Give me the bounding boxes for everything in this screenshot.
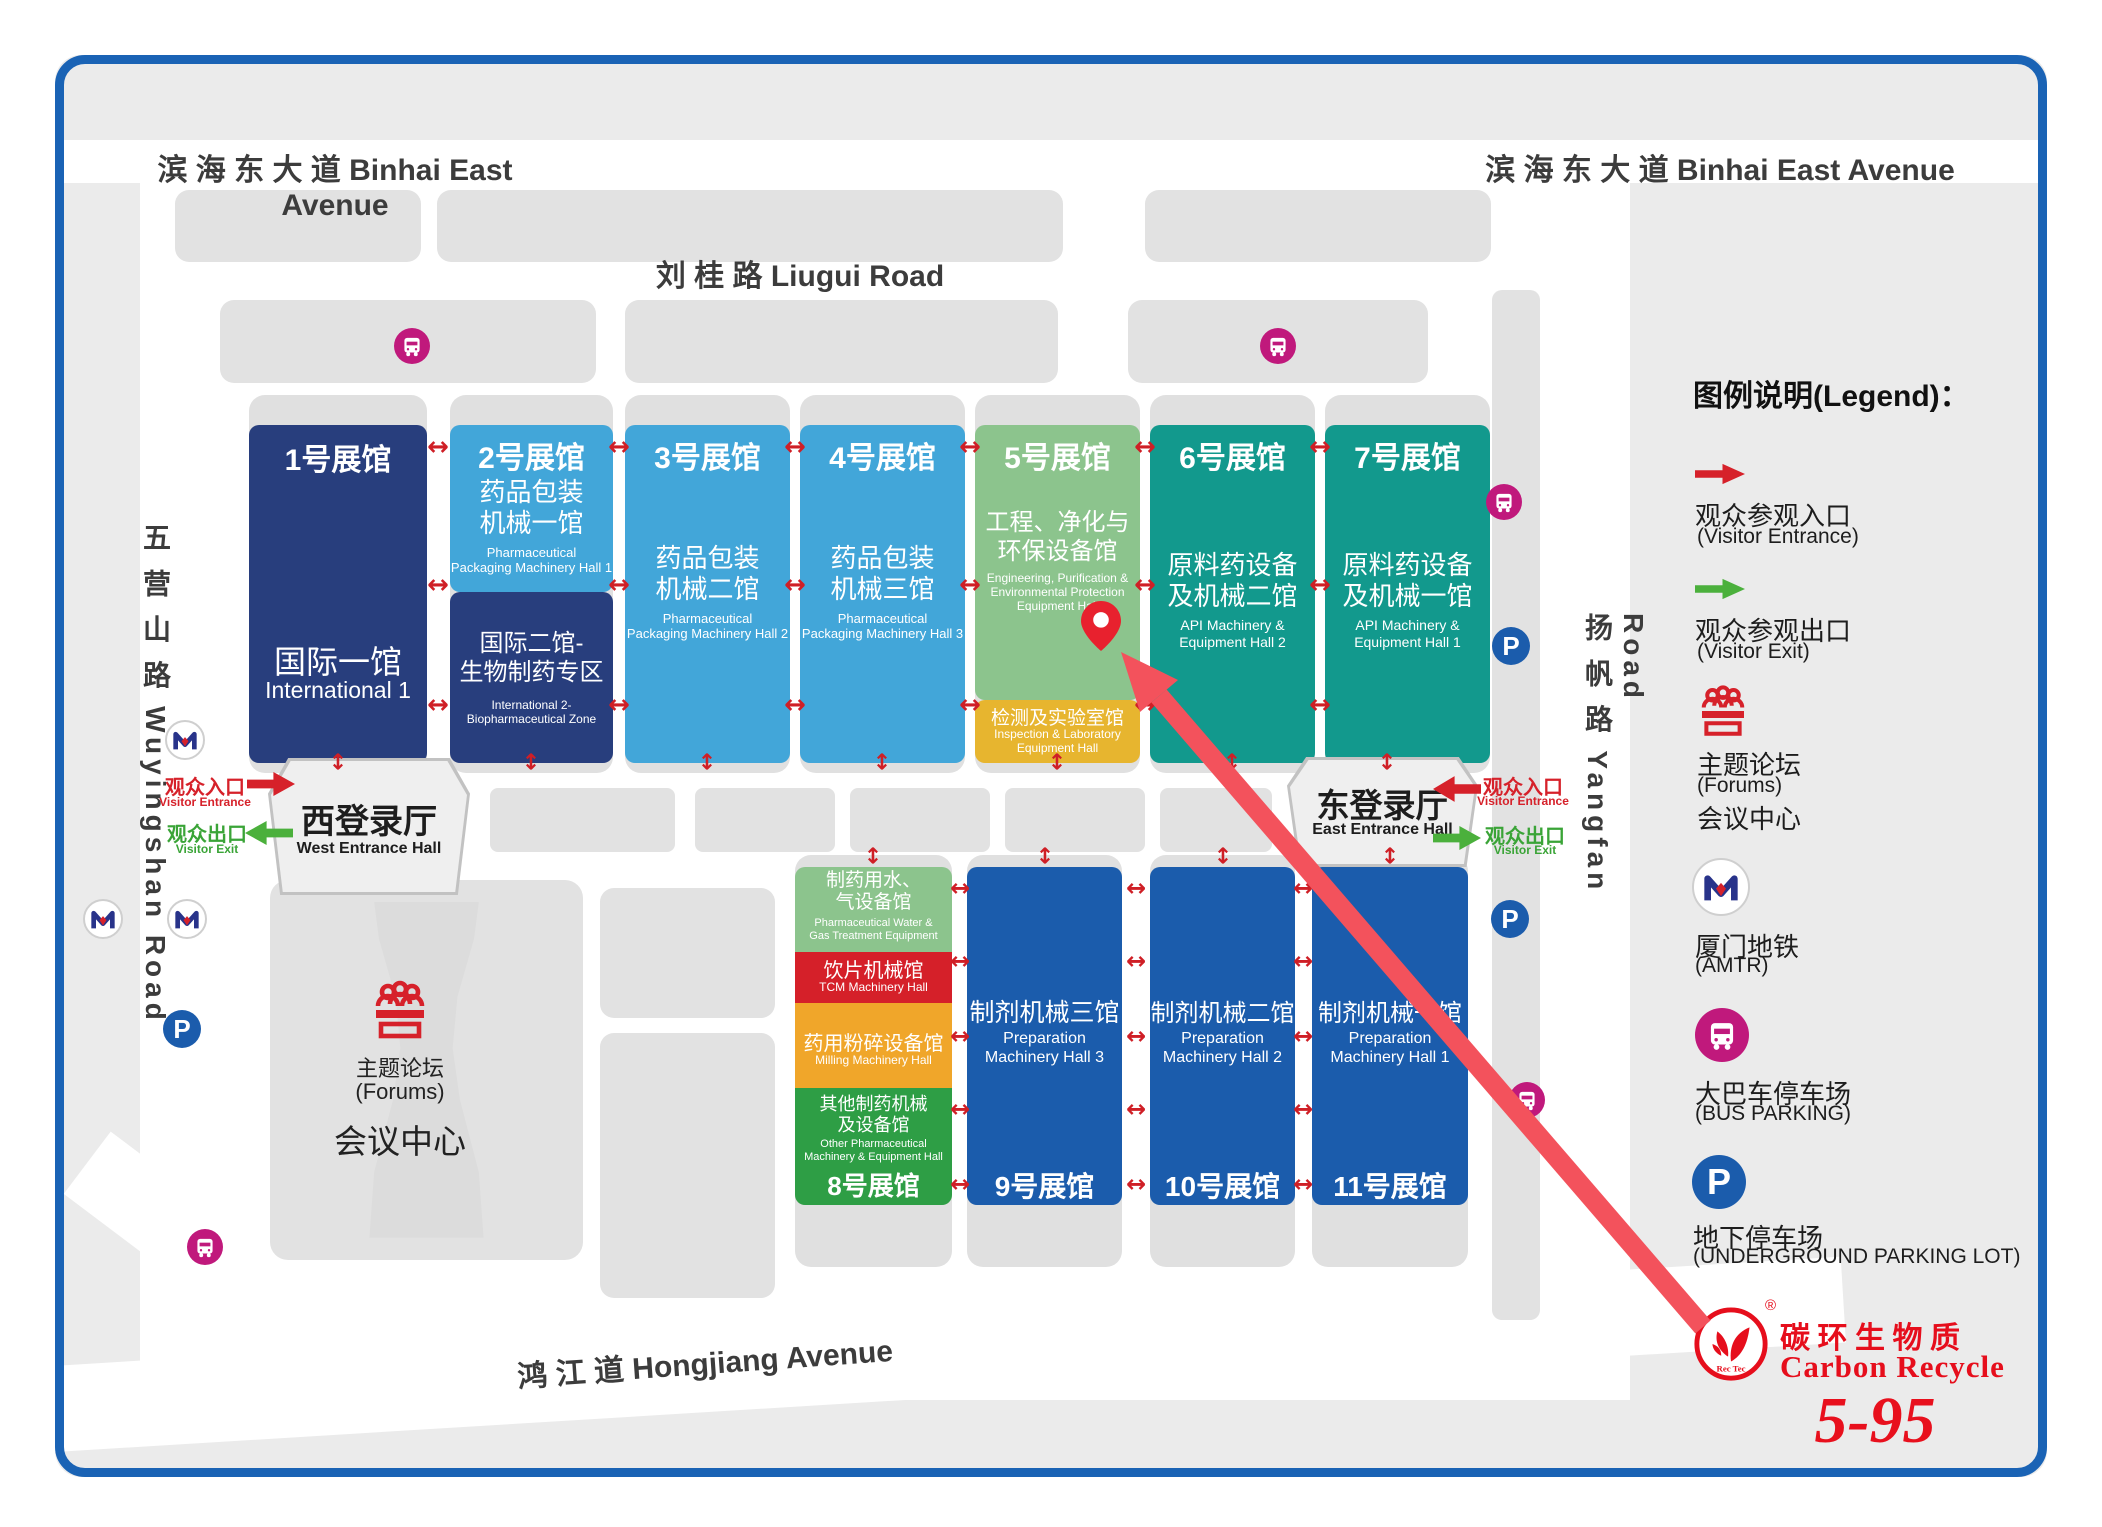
connector-arrow-icon: ↕ [1214,845,1232,870]
bus-stop-icon [1486,484,1522,520]
parking-icon: P [163,1010,201,1048]
corridor-block [850,788,990,852]
connector-arrow-icon: ↔ [950,874,970,902]
connector-arrow-icon: ↔ [1309,690,1331,720]
legend-parking-icon: P [1692,1155,1746,1209]
connector-arrow-icon: ↔ [1126,947,1146,975]
east-visitor-exit-en: Visitor Exit [1479,843,1571,857]
hall-10: 制剂机械二馆 Preparation Machinery Hall 2 10号展… [1150,867,1295,1205]
corridor-block [1005,788,1145,852]
hall-int2-en: International 2- Biopharmaceutical Zone [450,698,613,726]
hall-2-cn: 药品包装 机械一馆 [450,477,613,539]
hall-10-cn: 制剂机械二馆 [1150,993,1295,1028]
hall-8-other-en: Other Pharmaceutical Machinery & Equipme… [795,1138,952,1163]
bus-stop-icon [1509,1082,1545,1118]
hall-4-no: 4号展馆 [800,433,965,477]
corridor-block [1160,788,1272,852]
west-entrance-hall-cn: 西登录厅 [268,794,470,843]
hall-8-no: 8号展馆 [795,1166,952,1203]
hall-1-en: International 1 [249,677,427,704]
connector-arrow-icon: ↕ [873,751,891,776]
hall-8-other-cn: 其他制药机械 及设备馆 [795,1094,952,1135]
metro-station-icon [165,720,205,760]
hall-5: 5号展馆 工程、净化与 环保设备馆 Engineering, Purificat… [975,425,1140,700]
city-block [600,1033,775,1298]
hall-8-milling-en: Milling Machinery Hall [795,1053,952,1067]
connector-arrow-icon: ↔ [1126,874,1146,902]
hall-11-en: Preparation Machinery Hall 1 [1312,1029,1468,1067]
connector-arrow-icon: ↔ [1126,1022,1146,1050]
corridor-block [490,788,675,852]
hall-9-cn: 制剂机械三馆 [967,993,1122,1029]
booth-pin-icon [1081,601,1121,651]
connector-arrow-icon: ↔ [959,570,981,600]
connector-arrow-icon: ↔ [784,570,806,600]
connector-arrow-icon: ↔ [427,570,449,600]
connector-arrow-icon: ↔ [1134,570,1156,600]
connector-arrow-icon: ↔ [1134,432,1156,462]
hall-7-no: 7号展馆 [1325,433,1490,477]
exhibitor-name-en: Carbon Recycle [1780,1349,2040,1385]
connector-arrow-icon: ↔ [950,1095,970,1123]
city-block [1145,190,1491,262]
hall-international-2: 国际二馆- 生物制药专区 International 2- Biopharmac… [450,592,613,763]
hall-10-no: 10号展馆 [1150,1165,1295,1205]
connector-arrow-icon: ↕ [1378,751,1396,776]
legend-forums-cn2: 会议中心 [1697,799,1801,836]
connector-arrow-icon: ↕ [329,751,347,776]
connector-arrow-icon: ↕ [1223,751,1241,776]
west-entrance-hall: 西登录厅 West Entrance Hall [268,758,470,895]
legend-forums-icon [1695,683,1751,739]
connector-arrow-icon: ↔ [1309,432,1331,462]
hall-3-en: Pharmaceutical Packaging Machinery Hall … [625,611,790,642]
hall-7-cn: 原料药设备 及机械一馆 [1325,550,1490,612]
connector-arrow-icon: ↔ [1134,690,1156,720]
road-liugui-label: 刘 桂 路 Liugui Road [615,251,985,295]
corridor-block [695,788,835,852]
legend-forums-en: (Forums) [1697,774,1782,798]
connector-arrow-icon: ↔ [784,690,806,720]
hall-11-no: 11号展馆 [1312,1165,1468,1205]
city-block [600,888,775,1018]
conference-forums-en: (Forums) [270,1079,530,1105]
hall-8-tcm-en: TCM Machinery Hall [795,980,952,994]
conference-center-label: 会议中心 [270,1115,530,1163]
road-binhai-west-label: 滨 海 东 大 道 Binhai East Avenue [115,145,555,223]
hall-8-water: 制药用水、 气设备馆 Pharmaceutical Water & Gas Tr… [795,867,952,952]
connector-arrow-icon: ↔ [1309,570,1331,600]
hall-8-other: 其他制药机械 及设备馆 Other Pharmaceutical Machine… [795,1088,952,1205]
connector-arrow-icon: ↕ [864,845,882,870]
hall-9: 制剂机械三馆 Preparation Machinery Hall 3 9号展馆 [967,867,1122,1205]
connector-arrow-icon: ↕ [1048,751,1066,776]
map-canvas: 主题论坛 (Forums) 会议中心 1号展馆 国际一馆 Internation… [55,55,2047,1477]
hall-4-en: Pharmaceutical Packaging Machinery Hall … [800,611,965,642]
legend-exit-en: (Visitor Exit) [1697,640,1810,664]
connector-arrow-icon: ↔ [950,1170,970,1198]
hall-6-en: API Machinery & Equipment Hall 2 [1150,617,1315,651]
hall-9-en: Preparation Machinery Hall 3 [967,1029,1122,1067]
hall-1-no: 1号展馆 [249,435,427,479]
metro-station-icon [83,899,123,939]
connector-arrow-icon: ↔ [950,947,970,975]
hall-11-cn: 制剂机械一馆 [1312,993,1468,1028]
connector-arrow-icon: ↔ [959,432,981,462]
svg-text:Rec Tec: Rec Tec [1717,1363,1746,1373]
bus-stop-icon [394,328,430,364]
connector-arrow-icon: ↔ [1293,1170,1313,1198]
hall-6: 6号展馆 原料药设备 及机械二馆 API Machinery & Equipme… [1150,425,1315,763]
exhibitor-logo-icon: Rec Tec [1692,1305,1770,1383]
forums-icon [368,978,432,1042]
hall-8-tcm-cn: 饮片机械馆 [795,954,952,983]
connector-arrow-icon: ↔ [427,432,449,462]
parking-icon: P [1492,627,1530,665]
legend-metro-en: (AMTR) [1695,954,1768,978]
connector-arrow-icon: ↕ [1381,845,1399,870]
legend-entrance-en: (Visitor Entrance) [1697,525,1859,549]
hall-3-cn: 药品包装 机械二馆 [625,543,790,605]
hall-4: 4号展馆 药品包装 机械三馆 Pharmaceutical Packaging … [800,425,965,763]
connector-arrow-icon: ↔ [950,1022,970,1050]
booth-number: 5-95 [1770,1383,1980,1459]
bus-stop-icon [1260,328,1296,364]
connector-arrow-icon: ↕ [522,751,540,776]
east-visitor-entrance-en: Visitor Entrance [1473,794,1573,808]
west-entrance-hall-en: West Entrance Hall [268,840,470,858]
hall-2-en: Pharmaceutical Packaging Machinery Hall … [450,545,613,576]
road-binhai-east-label: 滨 海 东 大 道 Binhai East Avenue [1475,145,1965,189]
registered-mark: ® [1765,1297,1776,1314]
hall-10-en: Preparation Machinery Hall 2 [1150,1029,1295,1067]
hall-5-lab-cn: 检测及实验室馆 [975,703,1140,730]
hall-8-water-en: Pharmaceutical Water & Gas Treatment Equ… [795,917,952,942]
metro-station-icon [167,899,207,939]
connector-arrow-icon: ↔ [1126,1170,1146,1198]
legend-title: 图例说明(Legend)： [1693,371,1970,415]
connector-arrow-icon: ↔ [427,690,449,720]
hall-5-no: 5号展馆 [975,433,1140,477]
hall-7: 7号展馆 原料药设备 及机械一馆 API Machinery & Equipme… [1325,425,1490,763]
venue-map: 主题论坛 (Forums) 会议中心 1号展馆 国际一馆 Internation… [0,0,2102,1527]
connector-arrow-icon: ↔ [608,690,630,720]
hall-3-no: 3号展馆 [625,433,790,477]
connector-arrow-icon: ↔ [1293,947,1313,975]
hall-7-en: API Machinery & Equipment Hall 1 [1325,617,1490,651]
parking-icon: P [1491,900,1529,938]
connector-arrow-icon: ↕ [1036,845,1054,870]
connector-arrow-icon: ↔ [1293,1022,1313,1050]
connector-arrow-icon: ↔ [608,570,630,600]
city-block [625,300,1058,383]
connector-arrow-icon: ↔ [1293,874,1313,902]
legend-exit-arrow-icon [1695,578,1745,600]
hall-int2-cn: 国际二馆- 生物制药专区 [450,630,613,688]
connector-arrow-icon: ↔ [1293,1095,1313,1123]
legend-metro-icon [1692,858,1750,916]
connector-arrow-icon: ↔ [784,432,806,462]
hall-11: 制剂机械一馆 Preparation Machinery Hall 1 11号展… [1312,867,1468,1205]
hall-8-milling-cn: 药用粉碎设备馆 [795,1027,952,1056]
hall-5-cn: 工程、净化与 环保设备馆 [975,509,1140,567]
legend-bus-icon [1695,1008,1749,1062]
hall-8-milling: 药用粉碎设备馆 Milling Machinery Hall [795,1003,952,1088]
hall-2: 2号展馆 药品包装 机械一馆 Pharmaceutical Packaging … [450,425,613,592]
road-yangfan-label: 扬 帆 路 Yangfan Road [1577,613,1649,993]
connector-arrow-icon: ↔ [959,690,981,720]
road-wuyingshan-label: 五 营 山 路 Wuyingshan Road [135,523,175,1203]
hall-9-no: 9号展馆 [967,1165,1122,1205]
legend-entrance-arrow-icon [1695,463,1745,485]
hall-4-cn: 药品包装 机械三馆 [800,543,965,605]
hall-6-cn: 原料药设备 及机械二馆 [1150,550,1315,612]
legend-parking-en: (UNDERGROUND PARKING LOT) [1693,1245,2020,1269]
bus-stop-icon [187,1229,223,1265]
hall-3: 3号展馆 药品包装 机械二馆 Pharmaceutical Packaging … [625,425,790,763]
hall-6-no: 6号展馆 [1150,433,1315,477]
hall-2-no: 2号展馆 [450,433,613,477]
connector-arrow-icon: ↔ [608,432,630,462]
connector-arrow-icon: ↕ [698,751,716,776]
hall-1: 1号展馆 国际一馆 International 1 [249,425,427,763]
hall-8-tcm: 饮片机械馆 TCM Machinery Hall [795,952,952,1003]
connector-arrow-icon: ↔ [1126,1095,1146,1123]
legend-bus-en: (BUS PARKING) [1695,1102,1851,1126]
hall-8-water-cn: 制药用水、 气设备馆 [795,870,952,914]
